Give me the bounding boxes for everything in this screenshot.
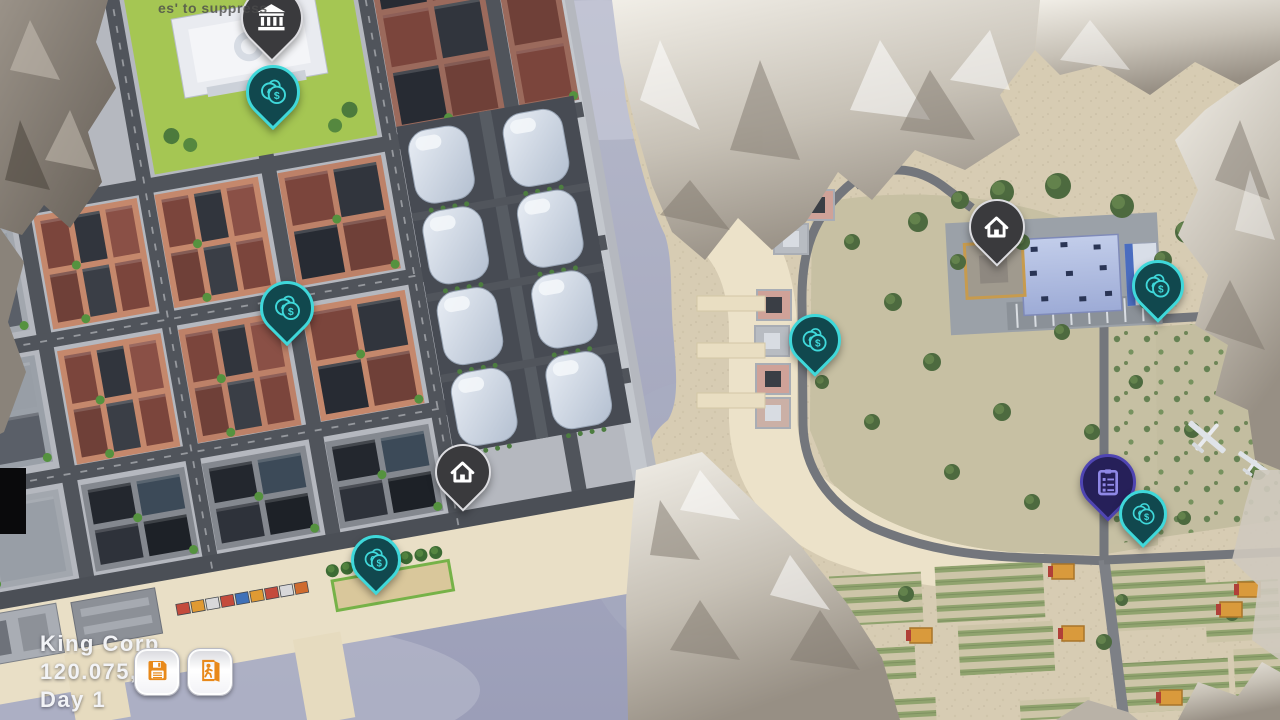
svg-text:$: $ <box>815 339 821 350</box>
home-icon <box>446 455 479 488</box>
coins-icon: €$ <box>1130 501 1157 528</box>
svg-text:$: $ <box>1158 285 1164 296</box>
debug-message: es' to suppress <box>158 0 268 16</box>
coins-icon: €$ <box>362 546 390 574</box>
map-pin-money[interactable]: €$ <box>789 314 841 366</box>
exit-icon <box>197 657 224 687</box>
map-pin-money[interactable]: €$ <box>1119 490 1167 538</box>
map-pin-home[interactable] <box>969 199 1025 255</box>
game-map <box>0 0 1280 720</box>
svg-text:$: $ <box>273 90 279 102</box>
hud-buttons <box>134 648 233 696</box>
svg-text:$: $ <box>1143 512 1148 522</box>
game-screen: es' to suppress €$€$€$€$€$€$ King Corp 1… <box>0 0 1280 720</box>
exit-button[interactable] <box>187 648 233 696</box>
save-icon <box>144 657 171 687</box>
svg-text:$: $ <box>287 306 293 318</box>
coins-icon: €$ <box>800 325 829 354</box>
map-pin-money[interactable]: €$ <box>1132 260 1184 312</box>
map-pin-money[interactable]: €$ <box>260 281 314 335</box>
map-pin-money[interactable]: €$ <box>246 65 300 119</box>
save-button[interactable] <box>134 648 180 696</box>
map-pin-money[interactable]: €$ <box>351 535 401 585</box>
coins-icon: €$ <box>272 293 303 324</box>
home-icon <box>980 210 1013 243</box>
coins-icon: €$ <box>258 77 289 108</box>
coins-icon: €$ <box>1143 271 1172 300</box>
svg-text:$: $ <box>376 558 382 569</box>
map-pin-home[interactable] <box>435 444 491 500</box>
